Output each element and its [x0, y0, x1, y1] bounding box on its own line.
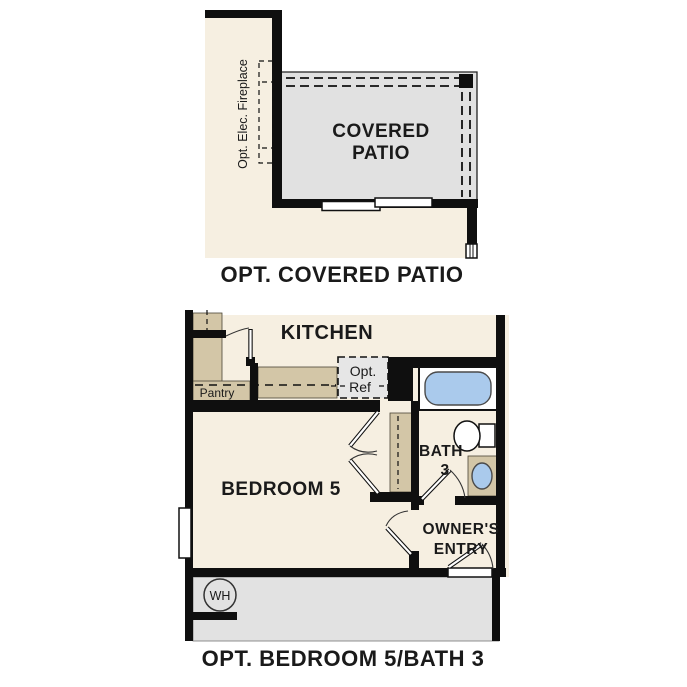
bathtub	[419, 367, 497, 410]
opt-ref-label-line2: Ref	[349, 379, 371, 395]
house-interior-floor	[282, 207, 467, 258]
tub-basin	[425, 372, 491, 405]
water-heater-label: WH	[210, 589, 231, 603]
floorplan-page: Opt. Elec. Fireplace COVERED PATIO OPT. …	[0, 0, 687, 687]
door-threshold	[448, 568, 492, 577]
owners-entry-label-line2: ENTRY	[434, 541, 489, 558]
bedroom5-bath3-plan: WH	[179, 310, 509, 671]
sliding-door-panel	[375, 198, 432, 207]
wall-segment	[185, 310, 193, 641]
wall-segment	[250, 363, 258, 402]
toilet-tank	[479, 424, 495, 447]
sliding-door-panel	[322, 202, 380, 211]
fireplace-label: Opt. Elec. Fireplace	[236, 59, 250, 169]
owners-entry-label-line1: OWNER'S	[423, 521, 500, 538]
floorplan-drawing: Opt. Elec. Fireplace COVERED PATIO OPT. …	[0, 0, 687, 687]
kitchen-counter	[258, 367, 337, 398]
covered-patio-plan: Opt. Elec. Fireplace COVERED PATIO OPT. …	[205, 10, 478, 287]
patio-post	[459, 74, 473, 88]
covered-patio-label-line1: COVERED	[332, 121, 429, 142]
covered-patio-label-line2: PATIO	[352, 143, 410, 164]
bedroom5-label: BEDROOM 5	[221, 479, 341, 500]
wall-segment	[193, 612, 237, 620]
garage-floor	[193, 577, 499, 641]
pantry-label: Pantry	[200, 386, 235, 400]
wall-segment	[492, 577, 500, 641]
wall-segment	[388, 357, 413, 401]
wall-segment	[185, 400, 380, 412]
bath3-label-line2: 3	[440, 462, 449, 479]
window	[179, 508, 191, 558]
wall-segment	[467, 208, 477, 245]
wall-segment	[193, 568, 448, 577]
window	[466, 244, 477, 258]
kitchen-label: KITCHEN	[281, 322, 373, 344]
sink-basin	[472, 463, 492, 489]
wall-segment	[205, 10, 282, 18]
closet-shelf	[390, 413, 414, 492]
bedroom5-bath3-caption: OPT. BEDROOM 5/BATH 3	[202, 646, 485, 671]
wall-segment	[455, 496, 499, 505]
bath3-label-line1: BATH	[419, 443, 463, 460]
water-heater: WH	[204, 579, 236, 611]
opt-ref-label-line1: Opt.	[350, 363, 376, 379]
wall-segment	[272, 10, 282, 203]
wall-segment	[185, 330, 226, 338]
covered-patio-caption: OPT. COVERED PATIO	[221, 262, 464, 287]
